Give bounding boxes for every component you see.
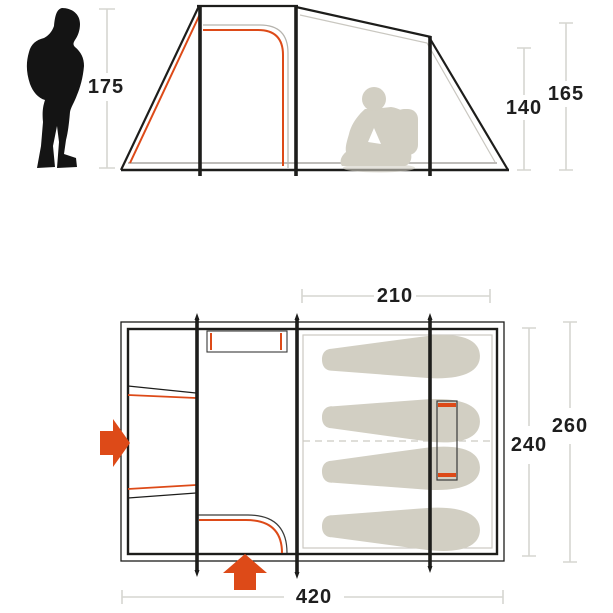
person-height-dimension: 175 xyxy=(88,9,124,168)
door-outline-orange xyxy=(203,30,283,166)
front-door-opening xyxy=(197,515,287,553)
front-entrance-arrow-icon xyxy=(223,554,267,590)
front-door-orange xyxy=(199,520,282,553)
tent-side-profile xyxy=(121,5,509,176)
person-height-label: 175 xyxy=(88,76,124,98)
sitting-person-icon xyxy=(341,87,418,173)
left-wall xyxy=(121,6,199,170)
sleeping-bag-1 xyxy=(321,334,480,382)
porch-door-flaps xyxy=(128,386,196,498)
roof-ridge-slope xyxy=(296,7,431,37)
bedroom-depth-dimension: 240 xyxy=(511,328,547,556)
living-area-window xyxy=(207,331,287,352)
tent-depth-label: 260 xyxy=(552,415,588,437)
peak-height-dimension: 165 xyxy=(548,23,584,170)
window-outline xyxy=(207,331,287,352)
right-wall xyxy=(429,37,508,170)
divider-pocket-top-band xyxy=(438,403,456,407)
door-outline-gray xyxy=(203,25,288,168)
diagram-canvas: 175 140 xyxy=(0,0,613,613)
side-view: 175 140 xyxy=(27,5,584,176)
sitting-person-head xyxy=(362,87,386,111)
peak-height-label: 165 xyxy=(548,83,584,105)
flap-top-orange xyxy=(128,395,196,398)
sitting-person-backpack xyxy=(394,109,418,155)
standing-person-icon xyxy=(27,8,84,168)
flap-bottom-orange xyxy=(128,485,196,489)
tent-dimensions-diagram: 175 140 xyxy=(0,0,613,613)
left-entrance-arrow-icon xyxy=(100,419,130,467)
flap-bottom-black xyxy=(128,493,196,498)
tent-length-dimension: 420 xyxy=(122,586,503,608)
bedroom-depth-label: 240 xyxy=(511,434,547,456)
tent-depth-dimension: 260 xyxy=(552,322,588,562)
bedroom-width-dimension: 210 xyxy=(302,285,490,307)
tent-length-label: 420 xyxy=(296,586,332,608)
flap-top-black xyxy=(128,386,196,393)
floor-plan: 210 xyxy=(100,285,588,608)
dimension-line-260 xyxy=(563,322,577,562)
inner-height-dimension: 140 xyxy=(506,48,542,170)
left-wall-orange-trim xyxy=(130,14,200,163)
inner-height-label: 140 xyxy=(506,97,542,119)
bedroom-width-label: 210 xyxy=(377,285,413,307)
divider-pocket-bottom-band xyxy=(438,473,456,477)
sleeping-bag-4 xyxy=(321,504,480,552)
